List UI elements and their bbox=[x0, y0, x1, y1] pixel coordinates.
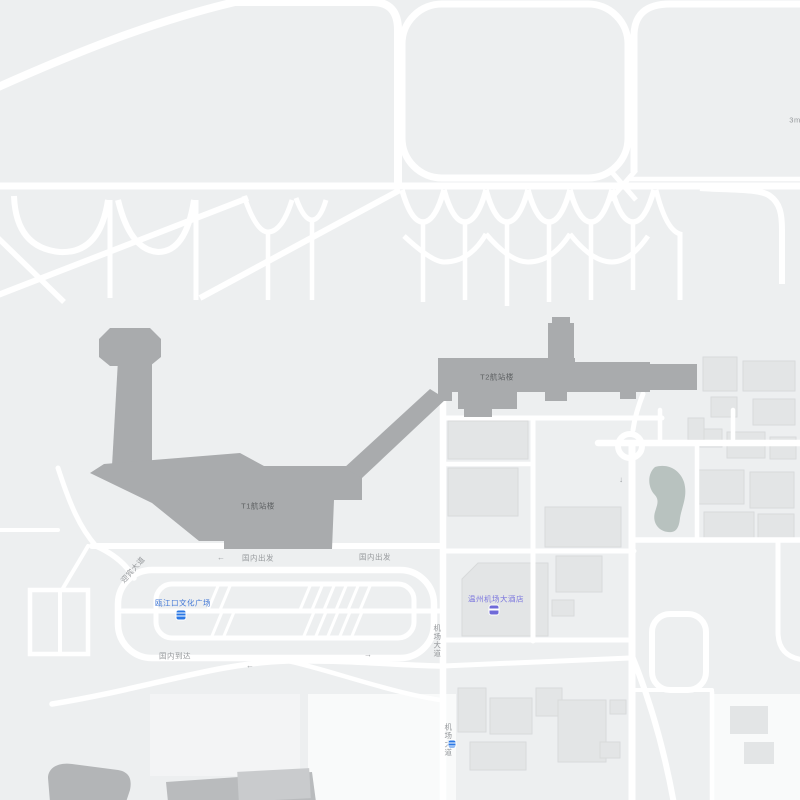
parking-rows bbox=[212, 612, 362, 636]
taxiway-arcade-row2 bbox=[404, 234, 648, 262]
oneway-arrow: ← bbox=[217, 554, 225, 562]
dark-area bbox=[48, 764, 131, 800]
building bbox=[556, 556, 602, 592]
building bbox=[758, 514, 794, 540]
transit-station-icon[interactable] bbox=[177, 611, 186, 620]
map-canvas[interactable]: T1航站楼 T2航站楼 国内出发 国内出发 国内到达 迎宾大道 机场大道 机场大… bbox=[0, 0, 800, 800]
terminal-1-building bbox=[90, 453, 362, 549]
airfield-taxiways bbox=[0, 2, 800, 306]
building bbox=[703, 357, 737, 391]
road bbox=[62, 546, 88, 590]
terminal-2-label[interactable]: T2航站楼 bbox=[480, 373, 514, 381]
oneway-arrow: ← bbox=[246, 662, 254, 670]
building bbox=[458, 688, 486, 732]
terminal-connector bbox=[344, 389, 446, 478]
building bbox=[600, 742, 620, 758]
taxiway-arch bbox=[14, 196, 108, 252]
taxiway-loop-2 bbox=[634, 4, 800, 172]
edge-note: 3m bbox=[789, 116, 800, 124]
dark-area bbox=[237, 768, 310, 800]
building bbox=[698, 470, 744, 504]
building bbox=[743, 361, 795, 391]
building bbox=[545, 507, 621, 547]
terminal-2-building bbox=[575, 362, 650, 392]
road-label-vertical-1: 机场大道 bbox=[433, 624, 441, 658]
building bbox=[558, 700, 606, 762]
oneway-arrow: → bbox=[364, 651, 372, 659]
terminal-2-tower-cap bbox=[552, 317, 570, 325]
road-ring-southeast bbox=[652, 614, 706, 690]
transit-station-icon-small[interactable] bbox=[449, 741, 456, 748]
terminal-1-label[interactable]: T1航站楼 bbox=[241, 502, 275, 510]
taxiway-arch bbox=[296, 198, 326, 220]
building bbox=[552, 600, 574, 616]
taxiway-corner bbox=[700, 188, 782, 284]
building bbox=[730, 706, 768, 734]
pond bbox=[649, 466, 685, 532]
building bbox=[448, 421, 528, 459]
terminal-2-tower bbox=[548, 323, 574, 363]
terminal-2-annex bbox=[458, 392, 517, 409]
taxiway-arch bbox=[244, 196, 292, 232]
parking-rows bbox=[208, 586, 370, 610]
map-layers[interactable] bbox=[0, 0, 800, 800]
transit-station-label[interactable]: 瓯江口文化广场 bbox=[155, 599, 211, 607]
taxiway-arcade-row1 bbox=[402, 190, 654, 222]
building bbox=[470, 742, 526, 770]
road-label-departures-2: 国内出发 bbox=[359, 553, 391, 561]
taxiway-arch bbox=[656, 190, 680, 300]
runway-sweep-curve bbox=[0, 2, 398, 186]
terminal-2-annex bbox=[620, 392, 636, 399]
building bbox=[448, 468, 518, 516]
road bbox=[633, 394, 643, 430]
terminal-1-pier bbox=[112, 360, 152, 466]
building bbox=[750, 472, 794, 508]
terminal-2-annex bbox=[545, 392, 567, 401]
building bbox=[744, 742, 774, 764]
road bbox=[778, 540, 800, 660]
road bbox=[443, 658, 630, 666]
terminal-2-annex bbox=[464, 409, 492, 417]
road bbox=[58, 468, 96, 546]
building bbox=[753, 399, 795, 425]
terminal-2-building bbox=[650, 364, 697, 390]
white-plot bbox=[308, 694, 456, 800]
white-plot bbox=[150, 694, 300, 776]
building bbox=[688, 418, 704, 440]
road-label-departures-1: 国内出发 bbox=[242, 554, 274, 562]
terminal-2-annex bbox=[438, 392, 452, 401]
oneway-arrow: ↓ bbox=[619, 476, 623, 484]
hotel-label[interactable]: 温州机场大酒店 bbox=[468, 595, 524, 603]
road-label-arrivals: 国内到达 bbox=[159, 652, 191, 660]
building bbox=[490, 698, 532, 734]
building bbox=[610, 700, 626, 714]
taxiway-loop-1 bbox=[402, 4, 628, 178]
hotel-icon[interactable] bbox=[490, 606, 499, 615]
